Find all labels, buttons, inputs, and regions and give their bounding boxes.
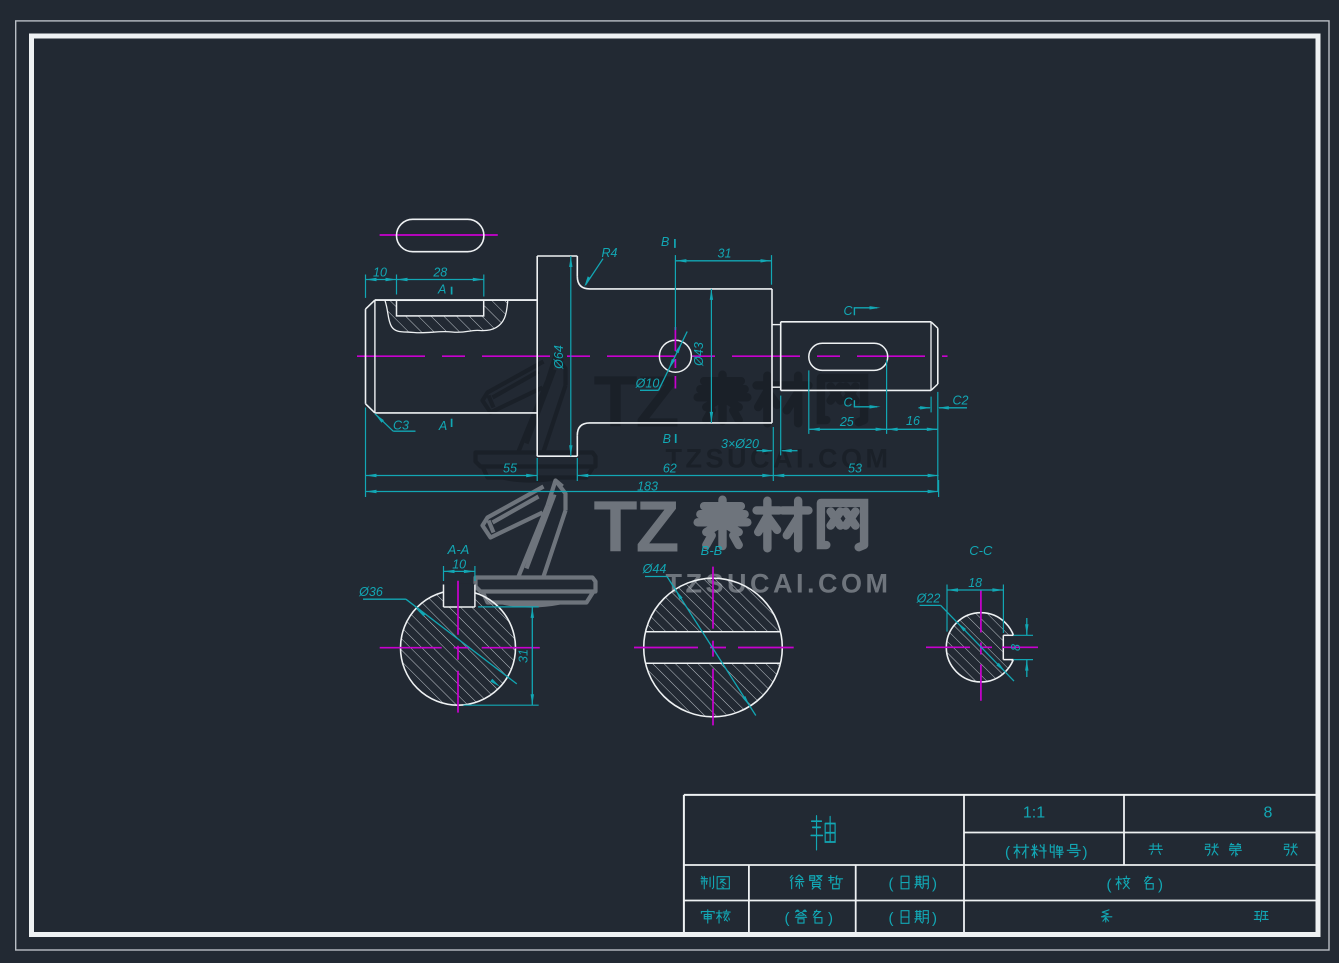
svg-text:8: 8 — [1264, 805, 1273, 822]
svg-text:B-B: B-B — [701, 543, 723, 558]
svg-text:(: ( — [889, 910, 894, 927]
svg-text:C: C — [843, 304, 853, 318]
svg-text:25: 25 — [839, 415, 854, 429]
svg-text:18: 18 — [968, 576, 982, 590]
svg-text:62: 62 — [663, 461, 677, 475]
svg-text:): ) — [932, 910, 937, 927]
svg-text:(: ( — [889, 876, 894, 893]
svg-text:1:1: 1:1 — [1023, 805, 1045, 822]
svg-text:31: 31 — [718, 247, 732, 261]
svg-text:10: 10 — [452, 557, 466, 571]
svg-text:16: 16 — [906, 414, 920, 428]
svg-text:R4: R4 — [602, 246, 618, 260]
svg-text:(: ( — [1005, 844, 1010, 861]
svg-text:B: B — [663, 432, 671, 446]
svg-text:TZ: TZ — [594, 488, 678, 568]
svg-text:28: 28 — [432, 265, 447, 279]
svg-text:31: 31 — [517, 649, 531, 663]
svg-text:TZ: TZ — [594, 363, 678, 443]
svg-text:53: 53 — [848, 461, 862, 475]
svg-text:): ) — [1158, 877, 1163, 894]
svg-text:10: 10 — [373, 265, 387, 279]
svg-text:B: B — [661, 235, 669, 249]
svg-text:Ø22: Ø22 — [916, 592, 941, 606]
svg-text:C: C — [843, 396, 853, 410]
svg-text:C3: C3 — [393, 418, 409, 432]
svg-text:C-C: C-C — [969, 543, 993, 558]
svg-text:183: 183 — [637, 480, 658, 494]
svg-text:A-A: A-A — [447, 542, 470, 557]
svg-text:): ) — [828, 910, 833, 927]
svg-text:Ø44: Ø44 — [642, 562, 667, 576]
svg-text:Ø36: Ø36 — [358, 585, 383, 599]
svg-text:): ) — [1083, 844, 1088, 861]
svg-text:Ø10: Ø10 — [635, 377, 660, 391]
svg-text:A: A — [437, 282, 446, 296]
svg-text:): ) — [932, 876, 937, 893]
svg-text:Ø43: Ø43 — [692, 342, 706, 367]
svg-text:55: 55 — [503, 461, 517, 475]
svg-text:(: ( — [1107, 877, 1112, 894]
svg-text:A: A — [438, 419, 447, 433]
svg-text:(: ( — [785, 910, 790, 927]
svg-text:3×Ø20: 3×Ø20 — [721, 437, 759, 451]
svg-text:C2: C2 — [953, 394, 969, 408]
svg-text:Ø64: Ø64 — [552, 345, 566, 370]
svg-text:8: 8 — [1009, 644, 1023, 651]
